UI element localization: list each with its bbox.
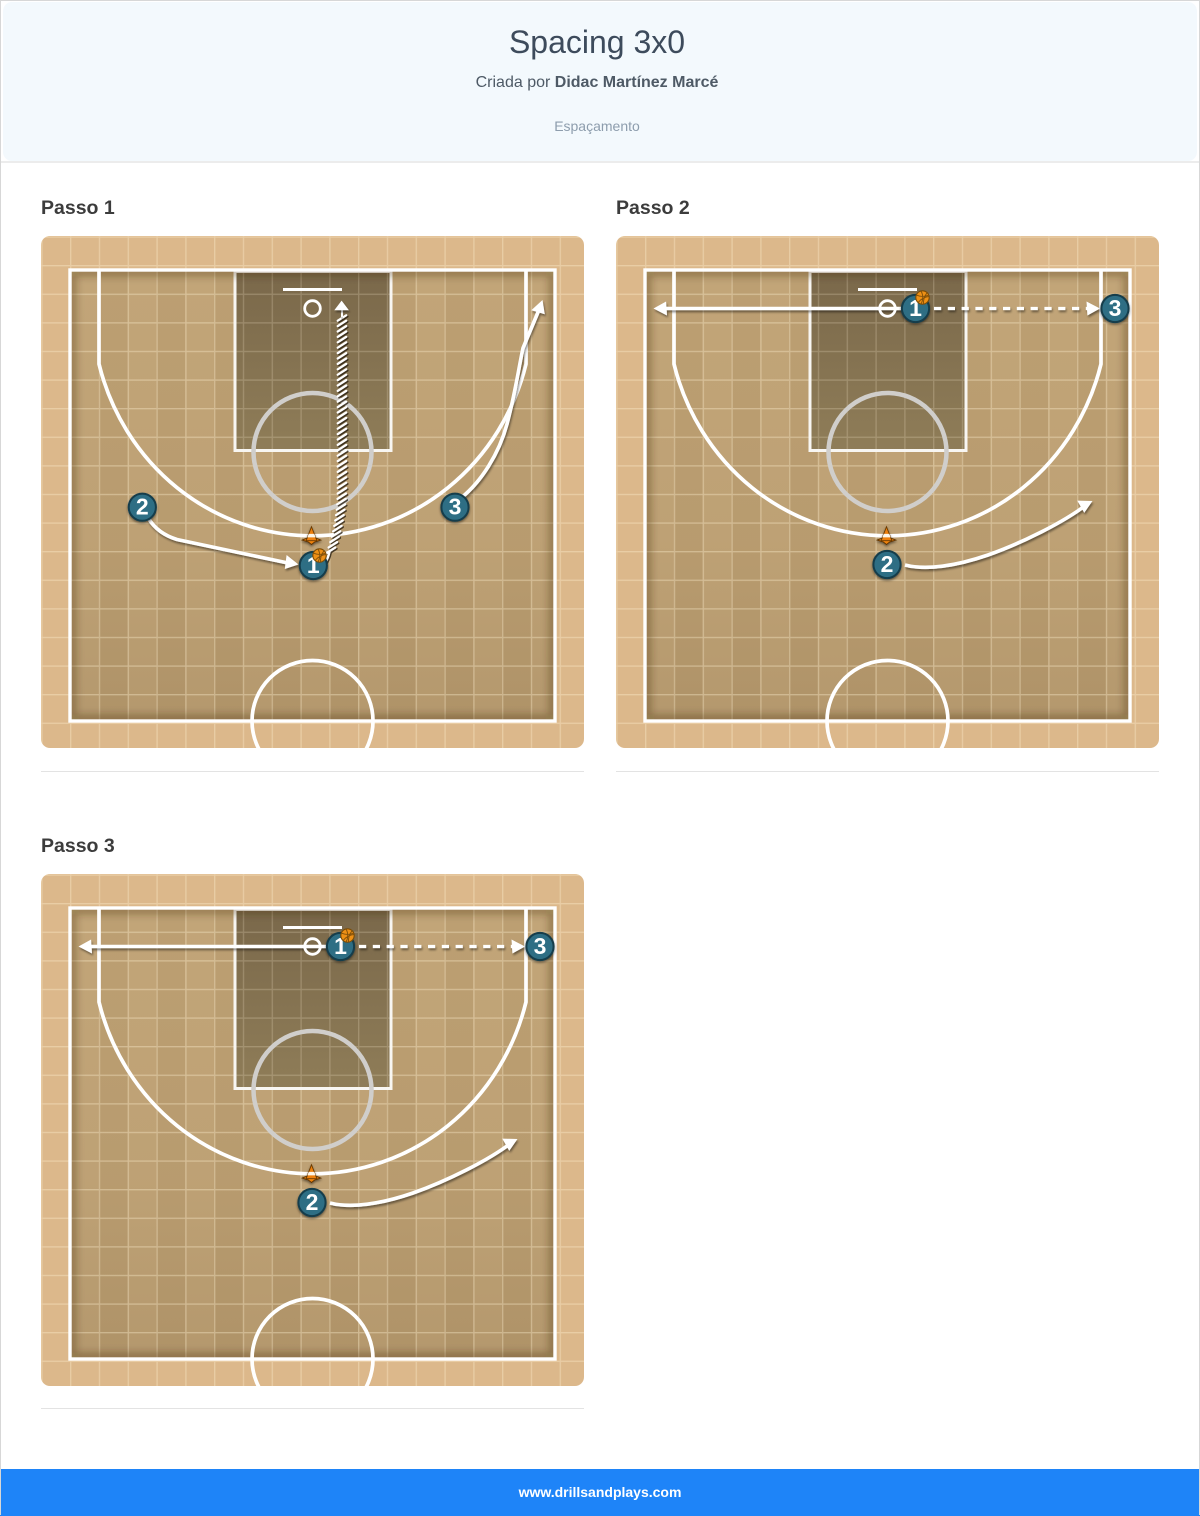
svg-text:3: 3 [1109, 295, 1122, 321]
svg-text:2: 2 [881, 551, 894, 577]
svg-text:3: 3 [534, 933, 547, 959]
svg-text:2: 2 [136, 494, 149, 520]
svg-text:3: 3 [449, 494, 462, 520]
svg-text:2: 2 [306, 1189, 319, 1215]
